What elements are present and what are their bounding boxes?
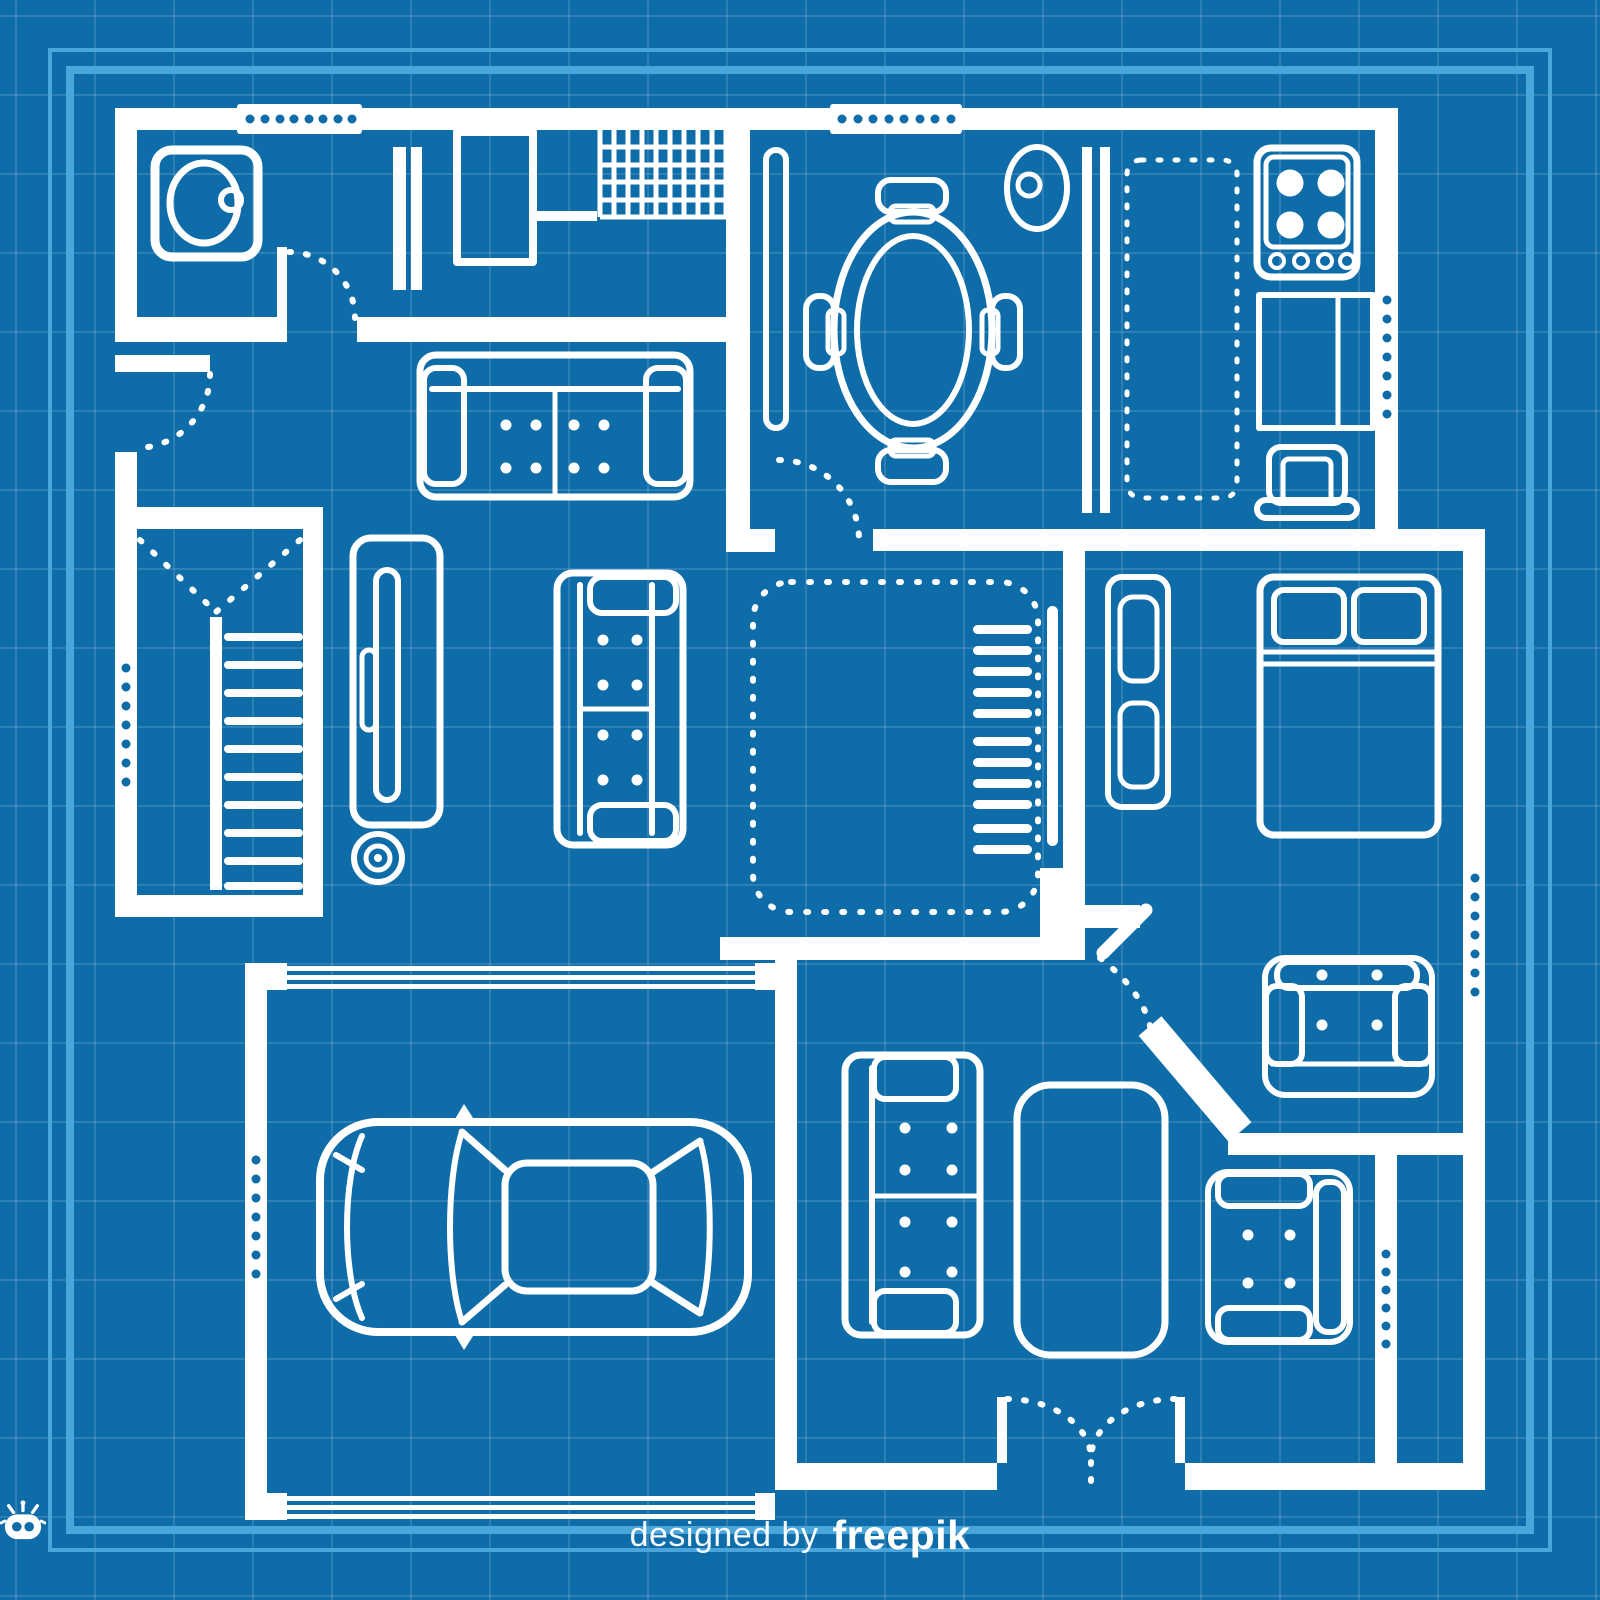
window-strip-garage-left [246, 1148, 266, 1290]
wall-entry-stub [115, 355, 210, 372]
living-room [353, 355, 690, 882]
wall-bottom-left [775, 1463, 997, 1490]
closet-room [140, 540, 303, 890]
hallway [753, 582, 1058, 912]
wall-hall-right-foot [1040, 868, 1085, 938]
sofa-vertical [557, 573, 683, 845]
vanity-cabinet [457, 132, 533, 262]
wall-right-outer [1463, 529, 1485, 1490]
window-strip-kitchen-right [1377, 285, 1397, 427]
side-mirror-top [452, 1104, 477, 1124]
wall-hall-top-left-foot [750, 529, 775, 552]
lounge [845, 1055, 1350, 1355]
window-strip-left-closet [116, 655, 136, 795]
car-top-view [320, 1104, 748, 1350]
counter-divider [1082, 147, 1110, 513]
staircase-up [973, 625, 1032, 854]
dining-door-arc [779, 460, 859, 540]
wall-hall-right [1063, 551, 1085, 868]
kitchen-chair [1257, 447, 1357, 518]
wall-closet-top [137, 507, 323, 529]
handrail [1047, 606, 1058, 846]
wall-bathroom-door-jamb [277, 247, 287, 342]
wall-bottom-right [1185, 1463, 1485, 1490]
wardrobe-dashed-marker [140, 540, 300, 612]
wall-garage-right [775, 937, 797, 1490]
garage-door-top [267, 963, 775, 990]
entry-hall-door-arc [136, 374, 210, 448]
bathroom-door-arc [289, 252, 355, 318]
overhead-cabinets-dashed [1127, 160, 1237, 498]
console-shelf [766, 150, 786, 428]
dining-chair-top [878, 180, 946, 222]
wall-entry-jamb-right [1175, 1397, 1185, 1463]
wall-entry-jamb-left [997, 1397, 1007, 1463]
wall-living-hall-divider [726, 342, 750, 552]
freepik-robot-icon [0, 1500, 46, 1542]
window-strip-top-bathroom [237, 104, 362, 134]
counter-with-sink [1259, 295, 1373, 428]
stove-4-burners [1257, 148, 1357, 277]
wall-left-upper [115, 108, 137, 342]
frame-inner-line [70, 70, 1530, 1530]
brand-text: freepik [832, 1512, 970, 1559]
shower-curb [533, 211, 597, 221]
armchair-facing-left [1208, 1172, 1350, 1342]
sofa-facing-right [845, 1055, 980, 1335]
oval-dining-table [834, 212, 992, 448]
wall-closet-right [303, 507, 323, 917]
coffee-table [1017, 1085, 1165, 1355]
pillow-right [1354, 590, 1424, 642]
bedroom-door-arc [1100, 958, 1152, 1038]
kitchen [1082, 147, 1373, 518]
wall-closet-bottom [115, 895, 323, 917]
bedroom [1108, 577, 1438, 835]
blueprint-canvas: designed by freepik [0, 0, 1600, 1600]
side-basin [1007, 147, 1067, 229]
washing-machine [155, 150, 258, 257]
wall-bathroom-bottom-right [357, 317, 750, 342]
wall-nook-bottom [1228, 1133, 1485, 1155]
dining-room [766, 147, 1067, 482]
speaker [354, 834, 402, 882]
tiled-shower [600, 130, 726, 217]
sofa-horizontal [420, 355, 690, 497]
window-strip-bedroom-right [1465, 866, 1485, 1006]
bathroom-laundry [155, 130, 726, 290]
window-strip-storage-left [1376, 1242, 1396, 1362]
wall-hall-bottom [720, 937, 1085, 960]
radiator [393, 147, 422, 290]
wall-bathroom-bottom-left [115, 317, 277, 342]
entry-double-door-arc-left [1007, 1399, 1091, 1459]
armchair-facing-down [1265, 958, 1432, 1095]
wall-bathroom-dining-divider [726, 130, 750, 342]
footer-credit: designed by freepik [0, 1500, 1600, 1570]
credit-text: designed by [630, 1516, 819, 1555]
pillow-left [1274, 590, 1344, 642]
window-strip-top-dining [830, 104, 962, 134]
double-bed [1260, 577, 1438, 835]
entry-double-door-arc-right [1091, 1399, 1175, 1459]
wardrobe [1108, 577, 1168, 807]
tv-cabinet [353, 538, 440, 825]
side-mirror-bottom [452, 1330, 477, 1350]
staircase-down [210, 617, 303, 890]
